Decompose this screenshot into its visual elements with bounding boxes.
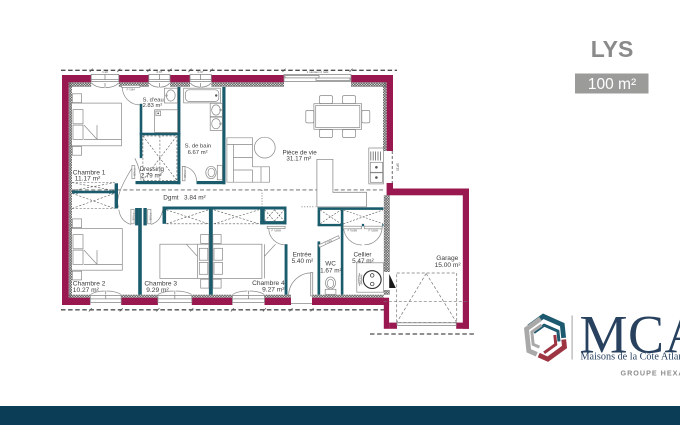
- svg-text:Maisons de la Côte Atlantique: Maisons de la Côte Atlantique: [581, 351, 680, 362]
- svg-text:9.27 m²: 9.27 m²: [262, 287, 285, 294]
- svg-text:5.47 m²: 5.47 m²: [352, 258, 374, 265]
- svg-text:1.67 m²: 1.67 m²: [320, 267, 342, 274]
- svg-text:Dgmt: Dgmt: [163, 195, 178, 202]
- svg-text:P 7d08: P 7d08: [133, 168, 136, 176]
- svg-text:LYS: LYS: [591, 36, 634, 62]
- svg-text:0.97: 0.97: [156, 70, 162, 74]
- svg-text:P 7b08M: P 7b08M: [348, 230, 358, 233]
- svg-text:100 m²: 100 m²: [588, 76, 636, 93]
- svg-text:31.17 m²: 31.17 m²: [286, 156, 311, 163]
- svg-text:3.84 m²: 3.84 m²: [184, 195, 206, 202]
- svg-text:SP10: SP10: [396, 163, 400, 171]
- svg-text:P 7d08: P 7d08: [183, 170, 186, 178]
- svg-text:10.27 m²: 10.27 m²: [73, 287, 100, 294]
- svg-text:S. de bain: S. de bain: [185, 144, 212, 150]
- svg-text:6.67 m²: 6.67 m²: [188, 150, 208, 156]
- svg-text:1.20: 1.20: [102, 70, 108, 74]
- svg-text:P 7d08: P 7d08: [132, 213, 135, 221]
- svg-text:Garage: Garage: [436, 255, 458, 262]
- svg-text:P 7d08M: P 7d08M: [271, 230, 281, 233]
- svg-text:15.00 m²: 15.00 m²: [435, 262, 462, 269]
- svg-text:11.17 m²: 11.17 m²: [75, 176, 101, 183]
- svg-text:5.40 m²: 5.40 m²: [292, 258, 314, 265]
- svg-text:P 7d08: P 7d08: [148, 213, 151, 221]
- svg-text:P 7d84: P 7d84: [127, 88, 136, 92]
- svg-text:2.83 m²: 2.83 m²: [143, 103, 163, 109]
- svg-text:9.29 m²: 9.29 m²: [146, 287, 169, 294]
- svg-text:0.97: 0.97: [198, 70, 204, 74]
- svg-text:ECS 200L: ECS 200L: [358, 275, 361, 287]
- svg-text:GROUPE HEXAOM: GROUPE HEXAOM: [621, 368, 680, 377]
- svg-text:2.79 m²: 2.79 m²: [141, 173, 162, 180]
- svg-text:P 7d08M: P 7d08M: [368, 230, 378, 233]
- svg-text:1 vantaux 2 rails: 1 vantaux 2 rails: [307, 70, 329, 74]
